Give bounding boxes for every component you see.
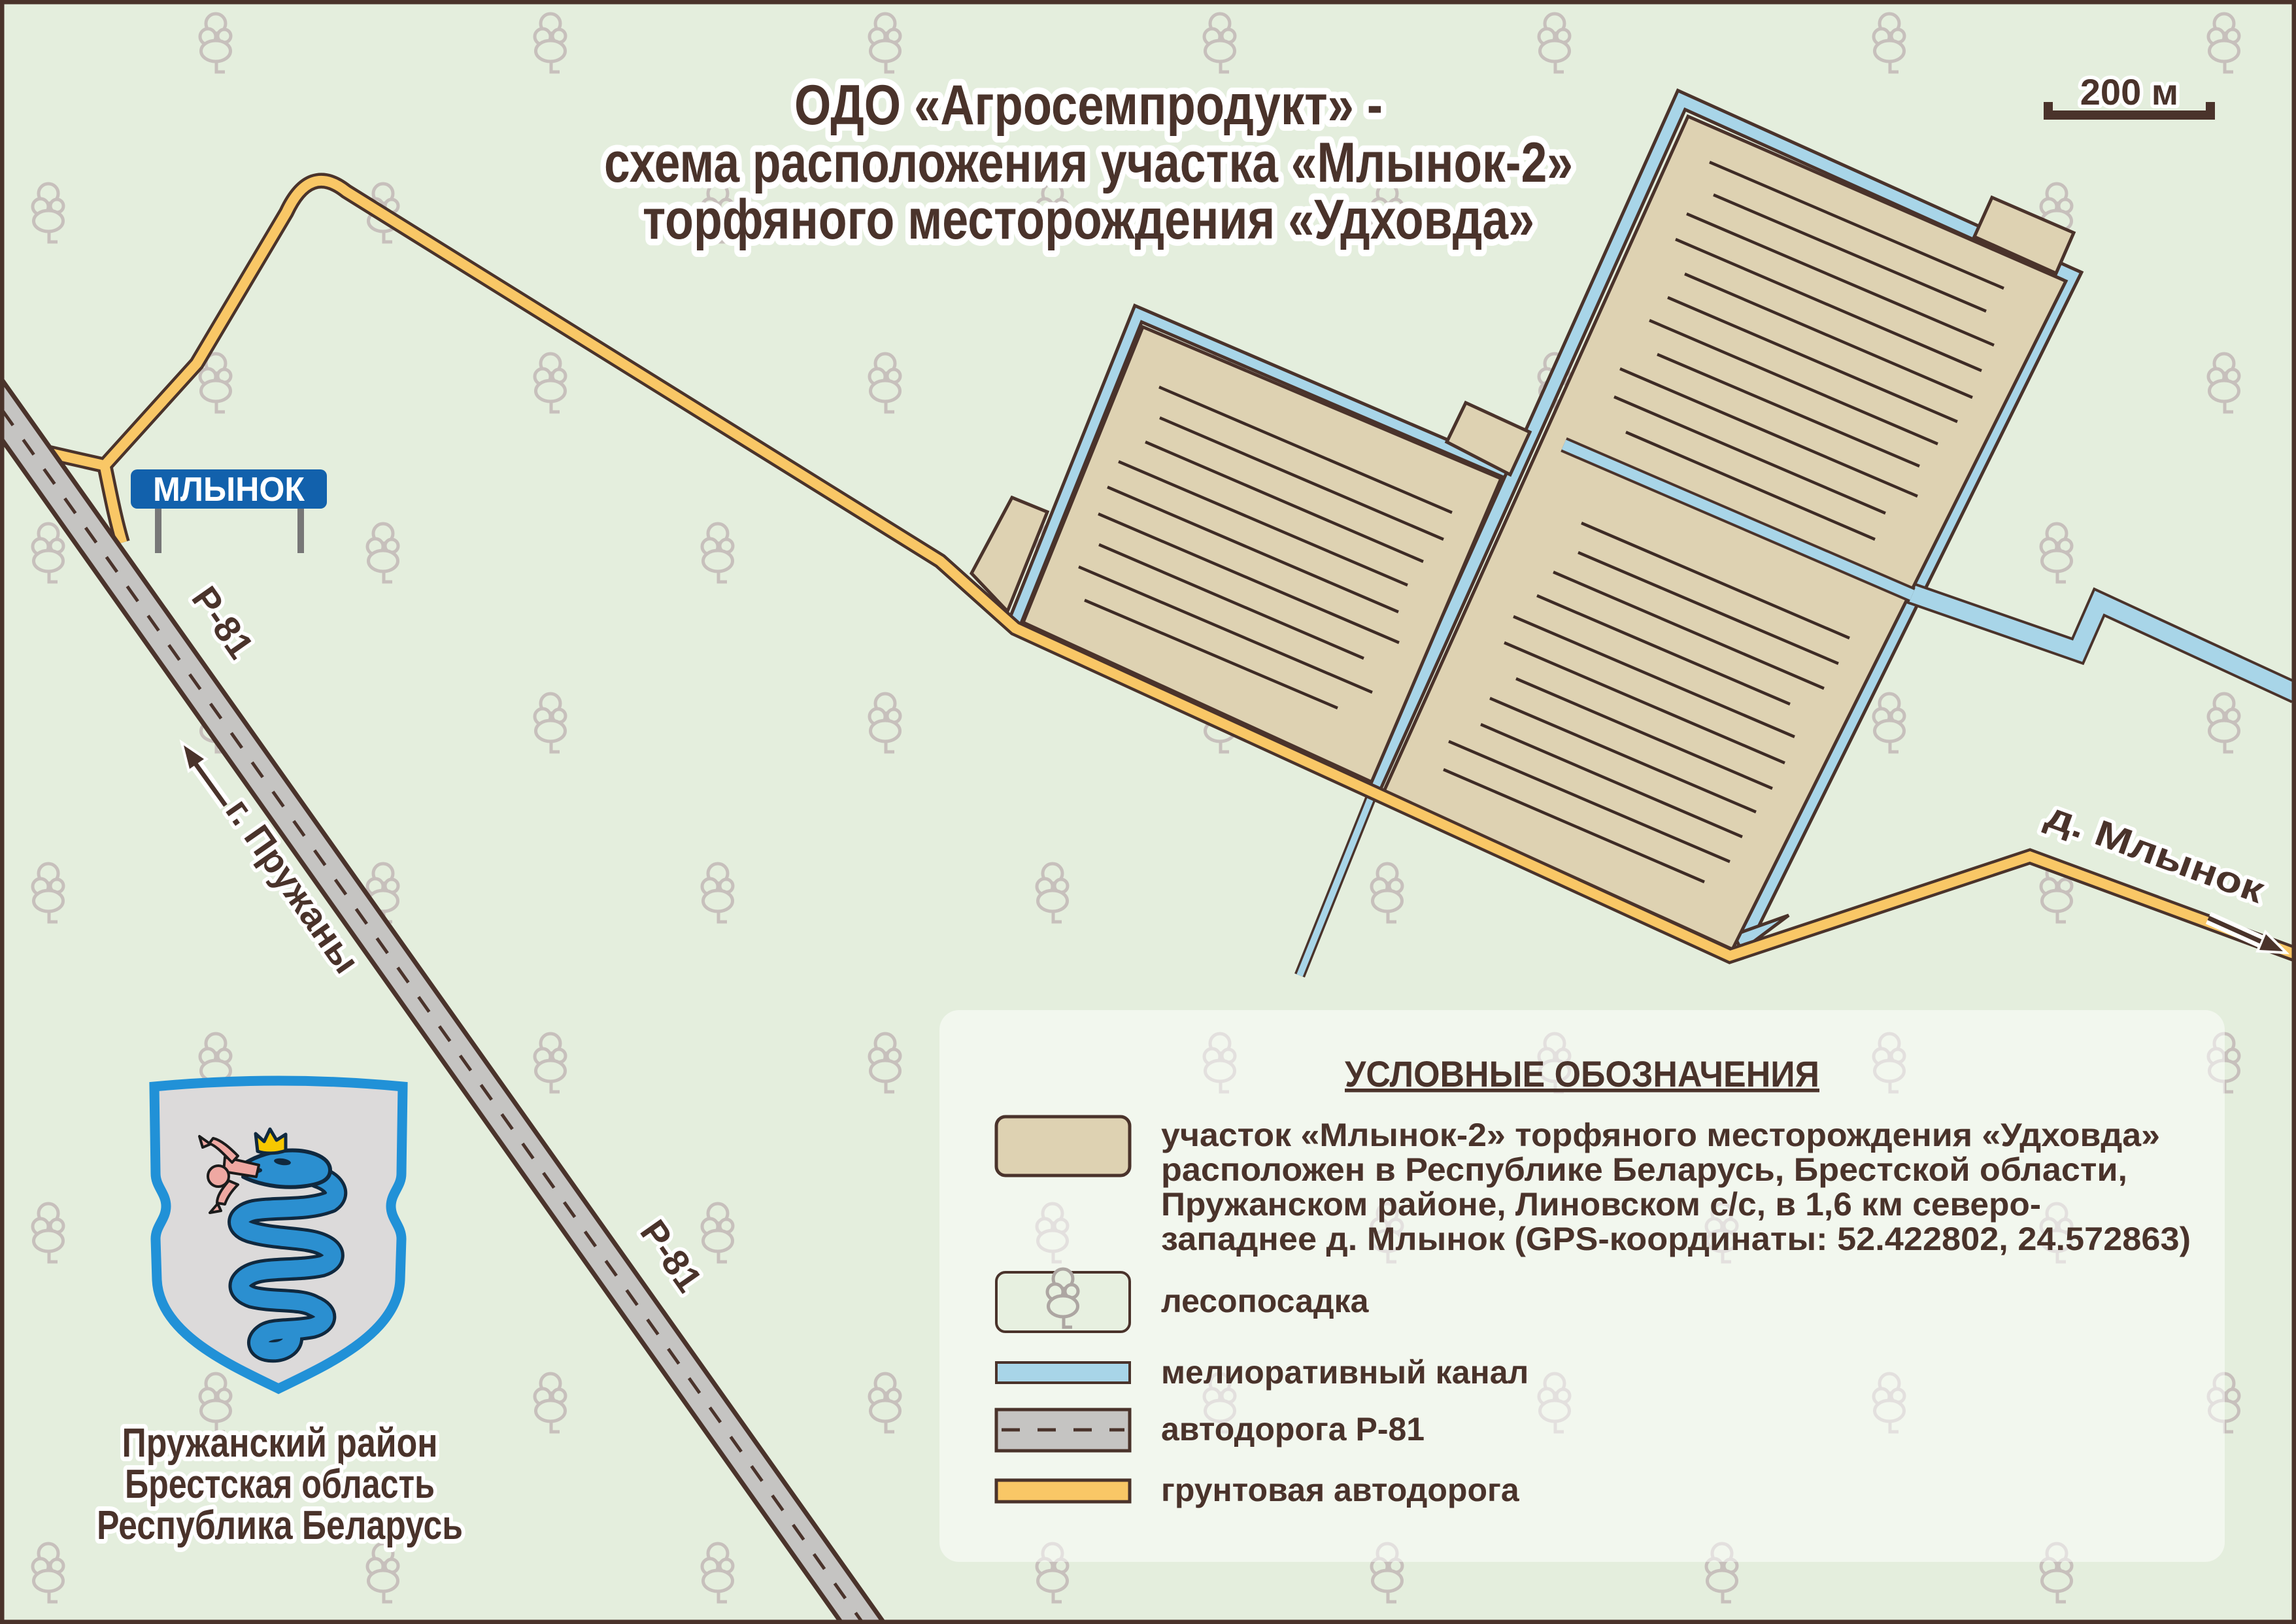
svg-text:Брестская область: Брестская область: [125, 1462, 435, 1507]
svg-text:схема расположения участка «Мл: схема расположения участка «Млынок-2»: [604, 131, 1573, 194]
svg-text:западнее д. Млынок (GPS-коорди: западнее д. Млынок (GPS-координаты: 52.4…: [1161, 1221, 2191, 1257]
svg-text:ОДО «Агросемпродукт» -: ОДО «Агросемпродукт» -: [794, 74, 1383, 137]
svg-text:УСЛОВНЫЕ ОБОЗНАЧЕНИЯ: УСЛОВНЫЕ ОБОЗНАЧЕНИЯ: [1345, 1053, 1819, 1094]
svg-text:Пружанском районе, Линовском с: Пружанском районе, Линовском с/с, в 1,6 …: [1161, 1186, 2041, 1223]
svg-text:торфяного месторождения «Удхов: торфяного месторождения «Удховда»: [643, 188, 1534, 251]
svg-text:расположен в Республике Белару: расположен в Республике Беларусь, Брестс…: [1161, 1151, 2127, 1188]
svg-text:автодорога Р-81: автодорога Р-81: [1161, 1411, 1425, 1447]
svg-text:мелиоративный канал: мелиоративный канал: [1161, 1354, 1528, 1391]
svg-text:лесопосадка: лесопосадка: [1161, 1283, 1370, 1319]
svg-text:участок «Млынок-2» торфяного м: участок «Млынок-2» торфяного месторожден…: [1161, 1117, 2160, 1153]
svg-text:200 м: 200 м: [2080, 71, 2178, 112]
svg-text:грунтовая автодорога: грунтовая автодорога: [1161, 1472, 1520, 1508]
svg-text:МЛЫНОК: МЛЫНОК: [153, 471, 305, 509]
svg-text:Пружанский район: Пружанский район: [122, 1421, 438, 1466]
svg-text:Республика Беларусь: Республика Беларусь: [97, 1503, 463, 1548]
